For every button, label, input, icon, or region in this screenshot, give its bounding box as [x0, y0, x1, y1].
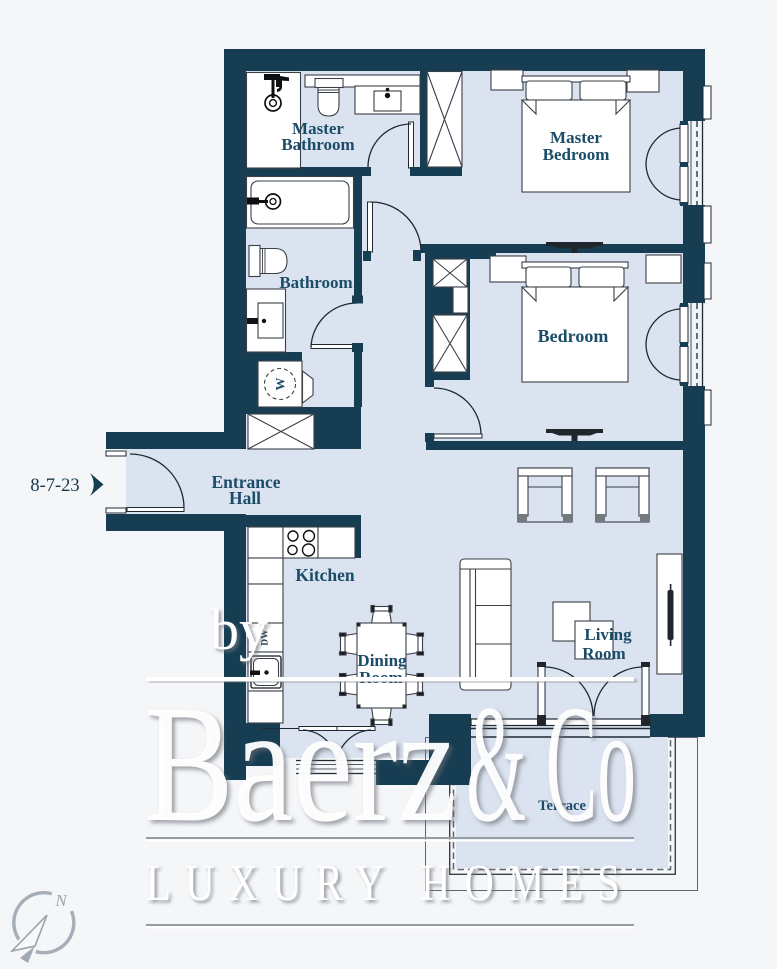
- svg-text:by: by: [210, 597, 268, 662]
- svg-text:Bedroom: Bedroom: [543, 145, 610, 164]
- svg-text:Living: Living: [584, 625, 632, 644]
- svg-text:Room: Room: [582, 644, 625, 663]
- svg-text:Kitchen: Kitchen: [295, 565, 355, 585]
- svg-text:W: W: [273, 378, 288, 391]
- svg-text:Bedroom: Bedroom: [538, 326, 609, 346]
- svg-text:Bathroom: Bathroom: [279, 273, 352, 292]
- svg-text:Baerz: Baerz: [144, 671, 457, 857]
- svg-text:Hall: Hall: [229, 488, 261, 508]
- svg-text:8-7-23: 8-7-23: [30, 476, 79, 496]
- svg-text:N: N: [54, 891, 68, 910]
- svg-text:& Co: & Co: [466, 671, 636, 857]
- svg-text:Bathroom: Bathroom: [281, 135, 354, 154]
- svg-text:LUXURY HOMES: LUXURY HOMES: [146, 855, 634, 912]
